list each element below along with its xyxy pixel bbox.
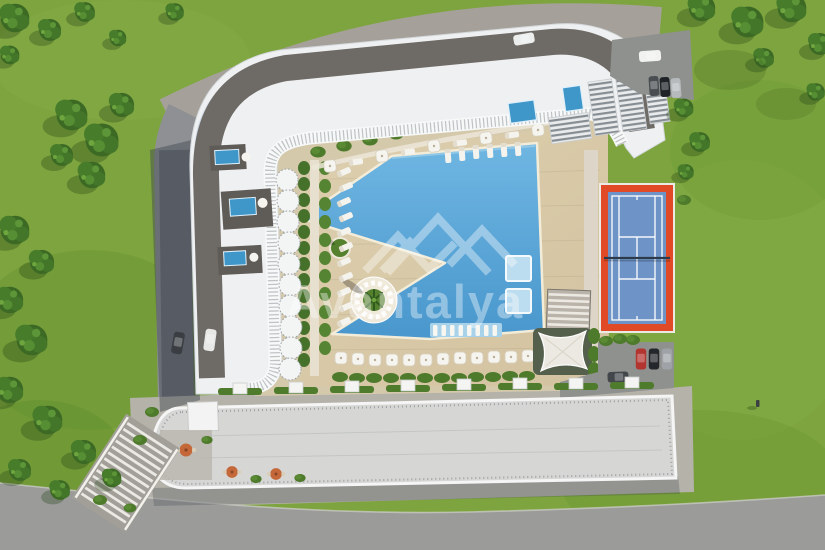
car-red xyxy=(636,349,646,370)
rooftop-pool xyxy=(508,100,537,123)
car-silver xyxy=(670,78,681,98)
car-black xyxy=(649,349,659,370)
car-white xyxy=(639,50,662,63)
rooftop-terrace xyxy=(217,245,262,275)
site-render: Avantalya xyxy=(0,0,825,550)
car-black xyxy=(659,77,670,97)
car-gray xyxy=(662,349,672,370)
tanning-ledge xyxy=(430,323,502,337)
rooftop-terrace xyxy=(209,144,251,171)
tennis-court xyxy=(600,184,674,332)
rooftop-pool xyxy=(215,149,240,164)
rooftop-terrace xyxy=(221,188,274,229)
bush xyxy=(599,336,613,346)
roof-access-structure xyxy=(187,401,218,431)
car-darkgray xyxy=(648,76,659,96)
rooftop-pool xyxy=(562,85,583,111)
swim-platform xyxy=(506,256,531,281)
swim-platform xyxy=(506,289,531,313)
pergola xyxy=(546,289,590,332)
rooftop-pool xyxy=(224,251,247,266)
rooftop-pool xyxy=(229,197,256,216)
shade-sail xyxy=(533,328,592,375)
